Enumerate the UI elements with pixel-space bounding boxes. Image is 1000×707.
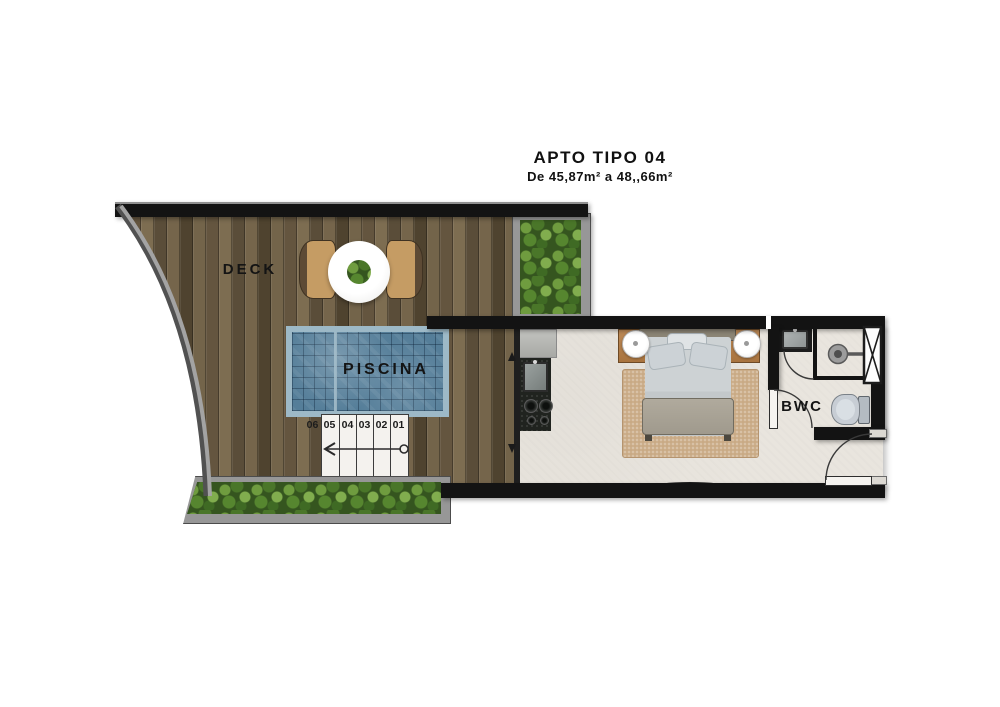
entry-door-leaf: [825, 476, 872, 486]
lamp-center: [633, 341, 638, 346]
right-wall: [871, 327, 885, 436]
stair-number: 04: [339, 419, 356, 431]
pool-label: PISCINA: [336, 361, 436, 379]
vertical-planter-plants: [520, 220, 581, 314]
table-plant-icon: [347, 260, 371, 284]
cooktop-burner-icon: [527, 416, 536, 425]
stair-number: 02: [373, 419, 390, 431]
lamp-icon: [733, 330, 761, 358]
interior-bottom-wall: [441, 483, 885, 498]
bwc-door-leaf: [769, 389, 778, 429]
deck-label: DECK: [210, 261, 290, 278]
toilet-bowl-inner: [836, 399, 855, 420]
cooktop-burner-icon: [524, 399, 538, 413]
deck-top-wall: [115, 202, 588, 217]
bed-blanket: [642, 398, 734, 435]
plan-title-block: APTO TIPO 04 De 45,87m² a 48,,66m²: [400, 148, 800, 184]
bathroom-label: BWC: [780, 398, 824, 415]
deck-chair-right: [386, 240, 423, 299]
entry-door-jamb: [869, 429, 887, 438]
shower-partition-horizontal: [815, 376, 867, 380]
bathroom-sink-icon: [782, 330, 808, 349]
kitchen-faucet-icon: [533, 360, 537, 364]
floor-plan-page: APTO TIPO 04 De 45,87m² a 48,,66m² DECK …: [0, 0, 1000, 707]
kitchen-sink-icon: [523, 362, 548, 392]
stair-number: 03: [356, 419, 373, 431]
cooktop-burner-icon: [540, 416, 549, 425]
lamp-center: [744, 341, 749, 346]
plan-area-range: De 45,87m² a 48,,66m²: [400, 169, 800, 184]
wall-joint-gap: [766, 316, 771, 329]
cooktop-burner-icon: [539, 399, 553, 413]
bathroom-left-wall: [768, 327, 779, 390]
kitchen-counter: [519, 329, 557, 358]
sliding-glass-door: [514, 329, 520, 484]
stair-number: 05: [321, 419, 338, 431]
bed-leg: [645, 434, 652, 441]
plan-title: APTO TIPO 04: [400, 148, 800, 168]
bed-leg: [724, 434, 731, 441]
bottom-planter-plants: [187, 482, 441, 514]
stair-number: 06: [304, 419, 321, 431]
lamp-icon: [622, 330, 650, 358]
stair-number: 01: [390, 419, 407, 431]
shower-partition-vertical: [813, 327, 817, 380]
